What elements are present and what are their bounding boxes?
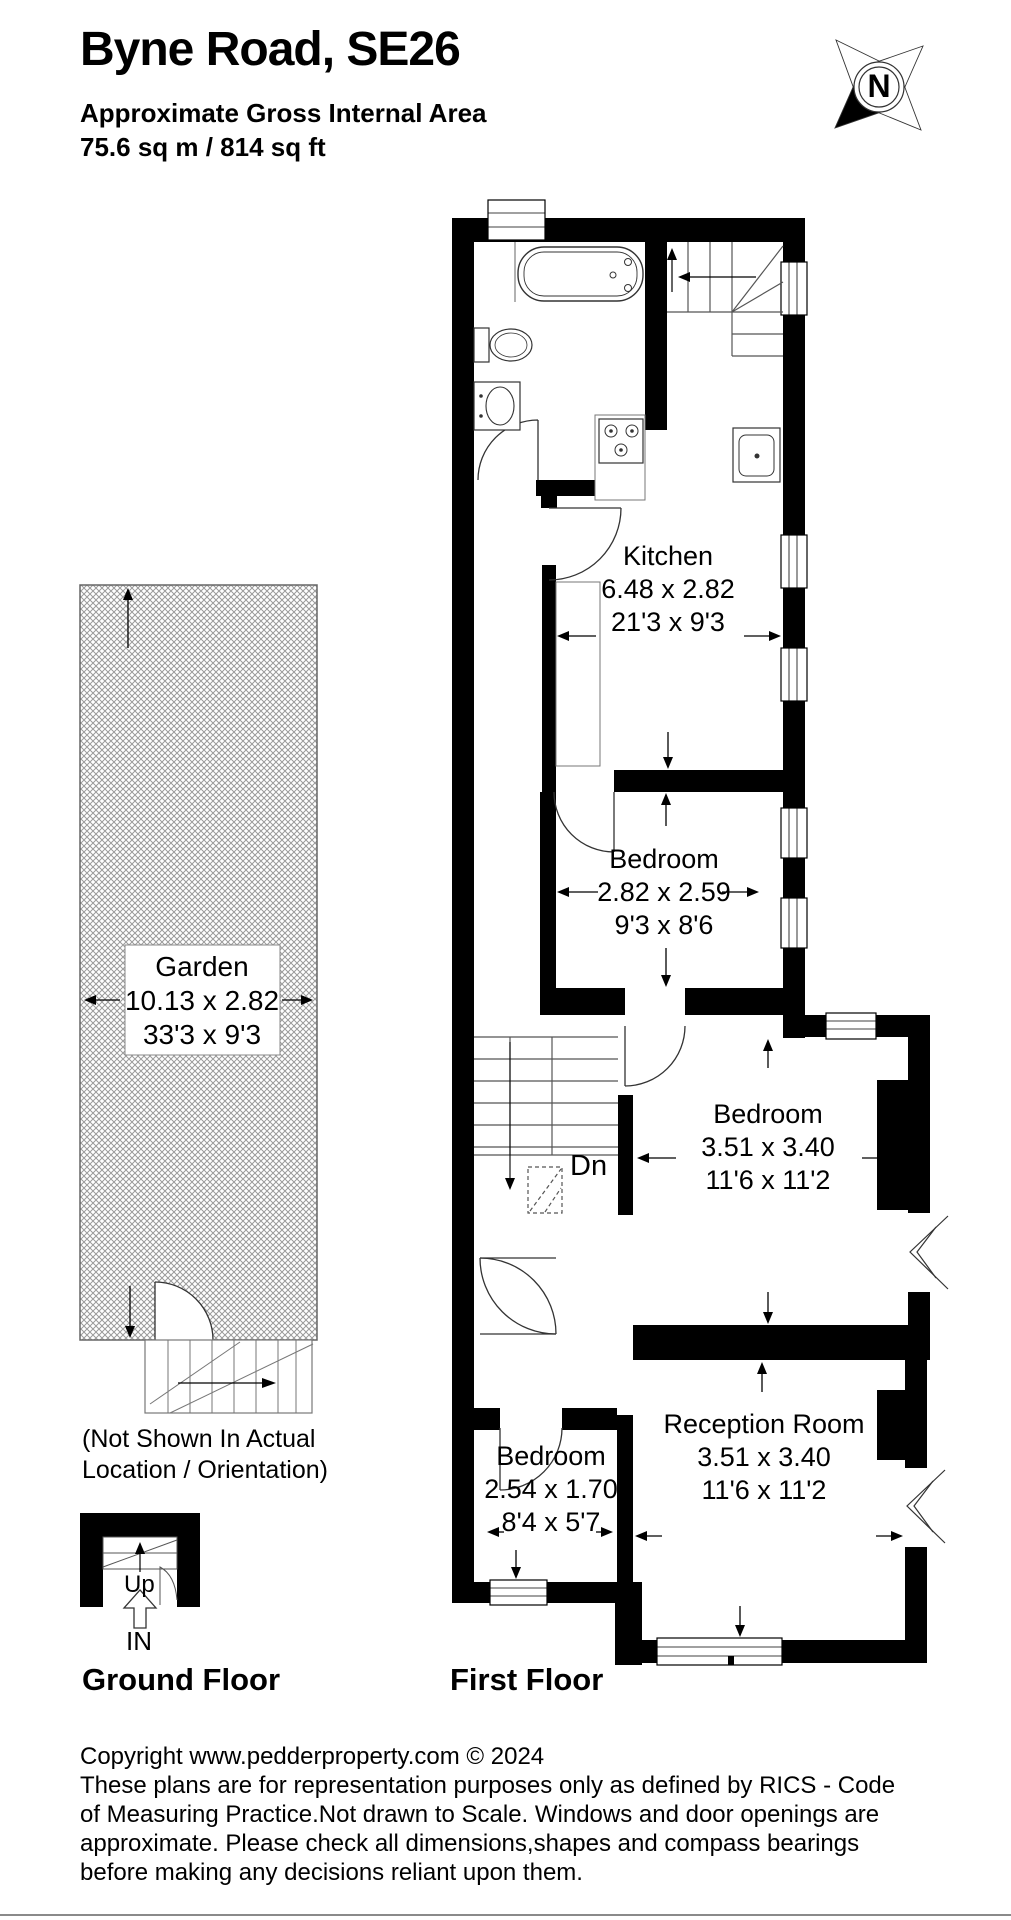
room-dim-m: 3.51 x 3.40 [663,1441,864,1474]
room-name: Bedroom [701,1098,835,1131]
compass-north-label: N [864,68,894,105]
landing-stairs [474,1037,618,1213]
stairs-up-label: Up [124,1571,155,1599]
first-floor-label: First Floor [450,1662,603,1698]
page-title: Byne Road, SE26 [80,22,460,77]
loft-stairs [667,242,783,356]
room-label-bedroom1: Bedroom 2.82 x 2.59 9'3 x 8'6 [597,843,731,942]
bottom-divider [0,1914,1011,1916]
room-dim-m: 6.48 x 2.82 [601,573,735,606]
room-dim-m: 2.82 x 2.59 [597,876,731,909]
room-name: Reception Room [663,1408,864,1441]
room-dim-ft: 9'3 x 8'6 [597,909,731,942]
entrance-in-label: IN [126,1626,152,1657]
garden-note-line2: Location / Orientation) [82,1455,328,1486]
copyright-block: Copyright www.pedderproperty.com © 2024 … [80,1742,895,1887]
ground-floor-label: Ground Floor [82,1662,280,1698]
room-dim-ft: 11'6 x 11'2 [701,1164,835,1197]
copyright-line2: These plans are for representation purpo… [80,1771,895,1800]
room-dim-m: 10.13 x 2.82 [125,984,279,1018]
room-dim-ft: 8'4 x 5'7 [484,1506,618,1539]
room-name: Bedroom [484,1440,618,1473]
copyright-line1: Copyright www.pedderproperty.com © 2024 [80,1742,895,1771]
copyright-line4: approximate. Please check all dimensions… [80,1829,895,1858]
room-name: Garden [125,950,279,984]
garden-note-line1: (Not Shown In Actual [82,1424,315,1455]
room-name: Bedroom [597,843,731,876]
copyright-line3: of Measuring Practice.Not drawn to Scale… [80,1800,895,1829]
room-dim-ft: 11'6 x 11'2 [663,1474,864,1507]
room-name: Kitchen [601,540,735,573]
room-label-reception: Reception Room 3.51 x 3.40 11'6 x 11'2 [663,1408,864,1507]
room-dim-m: 2.54 x 1.70 [484,1473,618,1506]
stairs-down-label: Dn [570,1150,607,1183]
room-dim-ft: 33'3 x 9'3 [125,1018,279,1052]
area-value: 75.6 sq m / 814 sq ft [80,132,326,163]
room-dim-ft: 21'3 x 9'3 [601,606,735,639]
room-label-bedroom3: Bedroom 2.54 x 1.70 8'4 x 5'7 [484,1440,618,1539]
copyright-line5: before making any decisions reliant upon… [80,1858,895,1887]
area-label: Approximate Gross Internal Area [80,98,487,129]
floorplan-page: { "header": { "title": "Byne Road, SE26"… [0,0,1011,1920]
bathroom-fixtures [474,242,643,430]
room-label-bedroom2: Bedroom 3.51 x 3.40 11'6 x 11'2 [701,1098,835,1197]
room-dim-m: 3.51 x 3.40 [701,1131,835,1164]
room-label-kitchen: Kitchen 6.48 x 2.82 21'3 x 9'3 [601,540,735,639]
room-label-garden: Garden 10.13 x 2.82 33'3 x 9'3 [125,950,279,1052]
